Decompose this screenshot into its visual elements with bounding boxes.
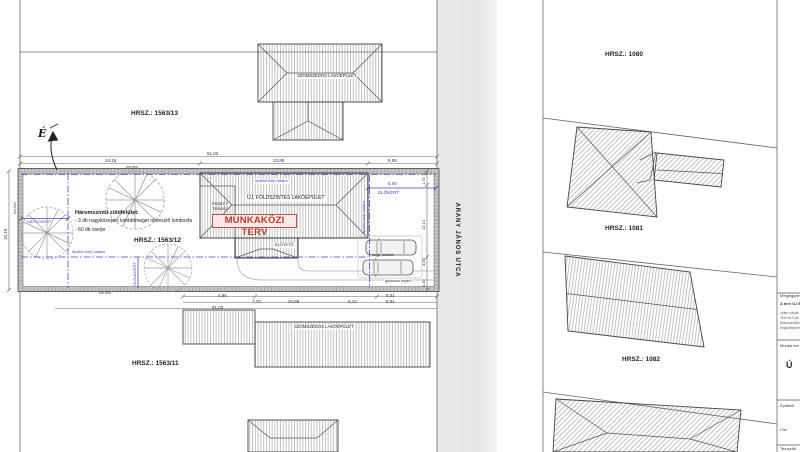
dim-bottom-total: 51,03	[212, 305, 223, 310]
titleblock-designers-label: Tervezők	[780, 447, 796, 452]
neighbor-top-label: SZOMSZÉDOS LAKÓÉPÜLET	[296, 74, 357, 79]
fence-label-bottom: kerítés	[99, 291, 111, 296]
dim-bottom-sub: 20,88	[288, 299, 299, 304]
titleblock-work-label: Munka me	[780, 344, 799, 349]
tree-icon	[21, 207, 73, 259]
tree-icon	[144, 244, 192, 292]
back-yard-label: HÁTSÓKERT	[27, 220, 51, 225]
north-arrow-icon	[49, 124, 59, 170]
dim-bottom-seg1: 4,96	[218, 293, 227, 298]
car-entry-label: gépkocsi bejáró	[384, 279, 413, 283]
titleblock-note-l4: engedélyezé	[780, 326, 800, 330]
green-note-item2: - 60 db cserje	[75, 228, 105, 234]
parcel-label-1563-13: HRSZ.: 1563/13	[131, 110, 178, 117]
neighbor-building-bottom-roof	[183, 310, 430, 367]
building-zone-label-top: építési hely határa	[254, 179, 289, 184]
green-note-item1: - 3 db nagyközepes lombtömeget növesztő …	[75, 219, 192, 225]
building-1082-roof	[565, 256, 704, 347]
green-note-title: Háromszintű zöldfelület:	[75, 210, 139, 216]
titleblock-note-header: Megjegyzés	[780, 294, 800, 299]
dim-right-seg3: 4,55	[422, 258, 427, 266]
north-label: É	[38, 128, 46, 141]
dim-right-seg1: 1,70	[422, 177, 427, 185]
building-1081-roof	[567, 127, 724, 217]
terrace-label-line2: TERASZ	[212, 207, 228, 212]
neighbor-building-top-roof	[258, 44, 382, 140]
parking-label: szgk. beállók	[372, 253, 394, 257]
dim-top-seg2: 23,88	[273, 158, 284, 163]
dim-top-total: 51,03	[207, 151, 218, 156]
canopy-label: ELŐTETŐ	[274, 243, 295, 248]
titleblock-client-label: Építtető	[780, 404, 794, 409]
plan-linework	[0, 0, 800, 452]
titleblock-note-l1: Jelen vázlat	[780, 311, 798, 315]
titleblock-address-label: Cím	[780, 428, 787, 433]
work-in-progress-stamp: MUNKAKÖZI TERV	[212, 214, 297, 228]
parcel-label-1081: HRSZ.: 1081	[605, 225, 643, 232]
dim-right-seg2: 13,14	[422, 220, 427, 230]
parcel-label-1082: HRSZ.: 1082	[622, 356, 660, 363]
neighbor-bottom-label: SZOMSZÉDOS LAKÓÉPÜLET	[293, 325, 354, 330]
car-icon	[363, 259, 413, 277]
front-yard-label: ELŐKERT	[378, 190, 399, 195]
side-yard-label: OLDALKERT	[133, 262, 138, 286]
titleblock-note-l2: Terv és Dok	[780, 316, 798, 320]
titleblock-note-l3: dokumentáci	[780, 321, 800, 325]
dim-bottom-seg2: 7,70	[252, 299, 261, 304]
dim-bottom-seg3: 9,10	[348, 299, 357, 304]
building-zone-label-right: építési hely határa	[362, 201, 367, 234]
building-zone-label-bottom: építési hely határa	[72, 250, 105, 255]
dim-top-seg1: 24,15	[105, 158, 116, 163]
boundary-lines	[20, 0, 777, 452]
parcel-label-1563-12: HRSZ.: 1563/12	[134, 237, 181, 244]
dim-bottom-seg4a: 8,01	[386, 293, 395, 298]
front-yard-depth: 6,50	[388, 181, 397, 186]
new-building-label: ÚJ, FÖLDSZINTES LAKÓÉPÜLET	[246, 196, 326, 202]
dim-top-seg3: 8,08	[388, 158, 397, 163]
site-plan-canvas: É HRSZ.: 1563/13 HRSZ.: 1563/12 HRSZ.: 1…	[0, 0, 800, 452]
dim-bottom-seg4b: 8,01	[386, 299, 395, 304]
dim-right-seg4: 1,40	[422, 279, 427, 287]
fence-label-top: kerítés	[126, 165, 138, 170]
bottom-right-building-roof	[553, 399, 741, 452]
bottom-center-building-roof	[248, 420, 338, 452]
street-name-label: ARANY JÁNOS UTCA	[453, 193, 460, 287]
parcel-label-1563-11: HRSZ.: 1563/11	[132, 360, 179, 367]
dim-left-side: 15,10	[3, 229, 8, 240]
titleblock-note-bold: A terv ÚJ É	[780, 302, 800, 307]
parcel-label-1080: HRSZ.: 1080	[605, 51, 643, 58]
titleblock-work-title: Ú	[786, 360, 793, 370]
fence-label-left: kerítés	[13, 202, 18, 214]
